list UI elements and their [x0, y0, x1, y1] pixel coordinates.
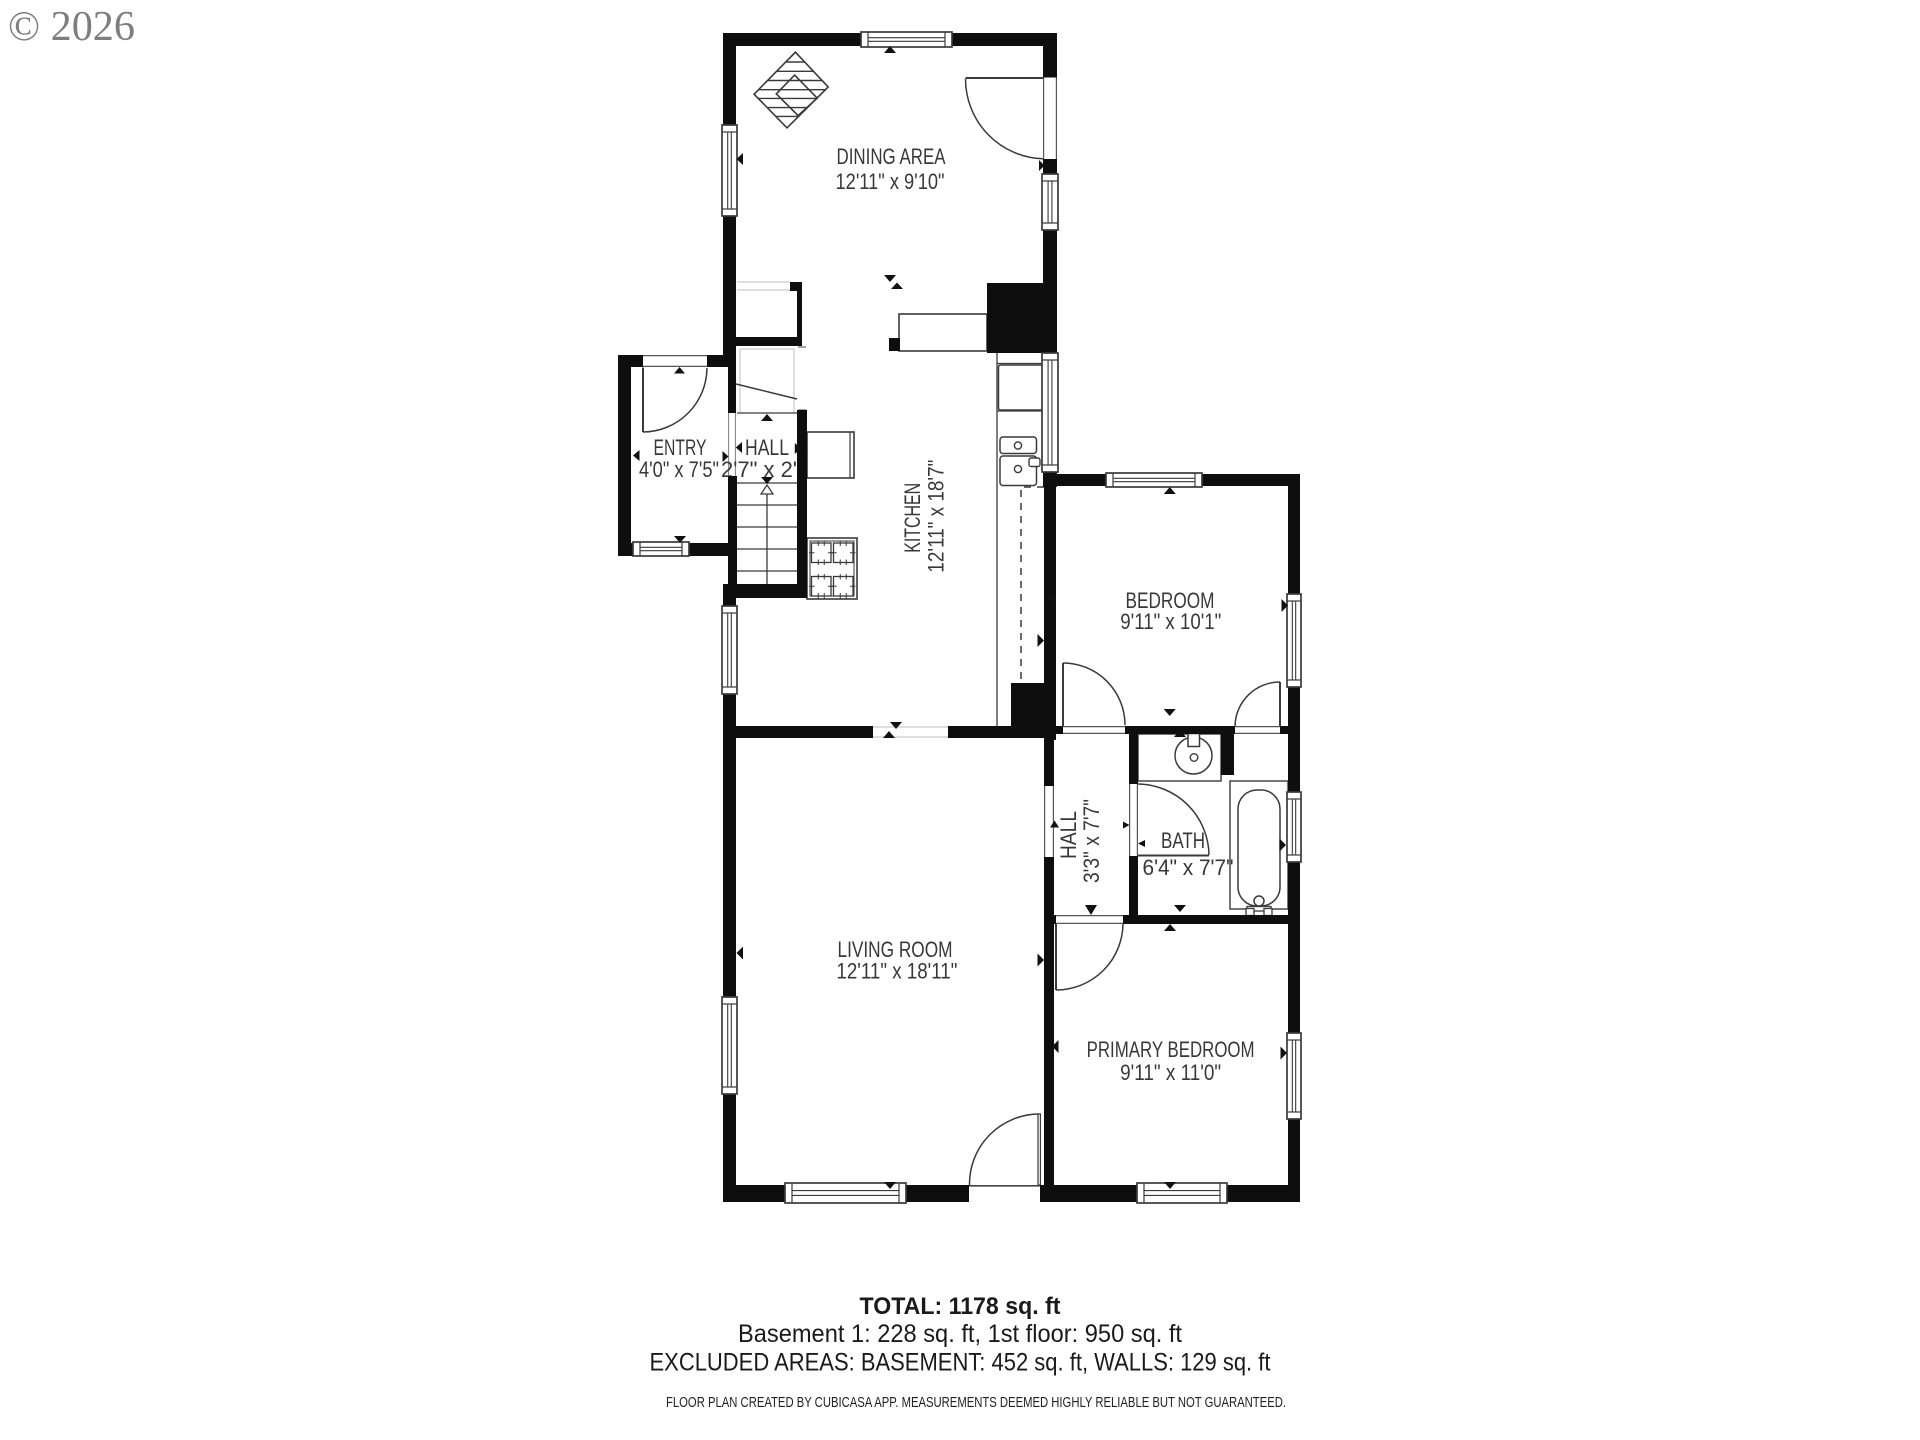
- svg-text:12'11" x 18'11": 12'11" x 18'11": [836, 959, 957, 984]
- svg-text:HALL: HALL: [1056, 811, 1081, 859]
- svg-text:9'11" x 11'0": 9'11" x 11'0": [1120, 1060, 1221, 1085]
- svg-text:Basement 1: 228 sq. ft, 1st fl: Basement 1: 228 sq. ft, 1st floor: 950 s…: [738, 1320, 1182, 1348]
- svg-text:9'11" x 10'1": 9'11" x 10'1": [1120, 609, 1221, 634]
- svg-text:3'3" x 7'7": 3'3" x 7'7": [1079, 799, 1104, 883]
- svg-text:DINING AREA: DINING AREA: [837, 144, 946, 169]
- svg-text:EXCLUDED AREAS: BASEMENT: 452: EXCLUDED AREAS: BASEMENT: 452 sq. ft, WA…: [650, 1349, 1271, 1377]
- svg-text:PRIMARY BEDROOM: PRIMARY BEDROOM: [1087, 1037, 1255, 1062]
- svg-text:BATH: BATH: [1161, 828, 1205, 853]
- svg-text:KITCHEN: KITCHEN: [900, 483, 925, 553]
- svg-text:12'11" x 18'7": 12'11" x 18'7": [924, 460, 949, 573]
- svg-text:6'4" x 7'7": 6'4" x 7'7": [1143, 855, 1234, 880]
- svg-text:FLOOR PLAN CREATED BY CUBICASA: FLOOR PLAN CREATED BY CUBICASA APP. MEAS…: [666, 1394, 1286, 1411]
- svg-text:HALL: HALL: [745, 435, 789, 460]
- svg-text:12'11" x 9'10": 12'11" x 9'10": [836, 169, 945, 194]
- svg-text:© 2026: © 2026: [8, 4, 135, 50]
- svg-text:4'0" x 7'5": 4'0" x 7'5": [639, 457, 719, 482]
- svg-text:TOTAL: 1178 sq. ft: TOTAL: 1178 sq. ft: [860, 1293, 1061, 1320]
